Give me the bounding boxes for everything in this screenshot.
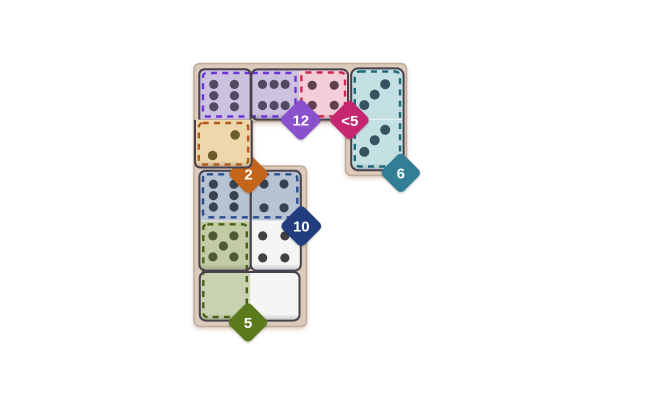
svg-text:5: 5 <box>244 315 252 332</box>
svg-text:2: 2 <box>244 166 252 183</box>
svg-text:10: 10 <box>293 219 310 236</box>
svg-text:<5: <5 <box>341 113 358 130</box>
svg-text:12: 12 <box>292 112 309 129</box>
svg-text:6: 6 <box>397 165 405 182</box>
